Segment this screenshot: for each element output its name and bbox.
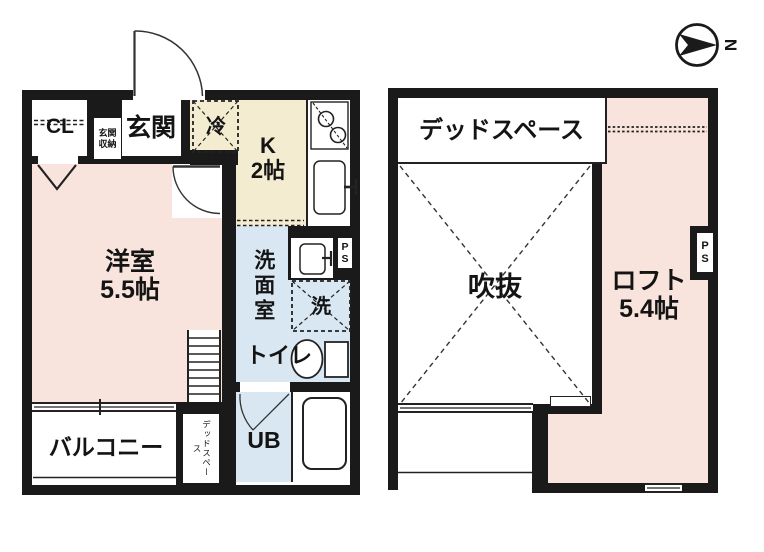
label-north: N xyxy=(720,34,740,56)
washbasin-box xyxy=(291,238,333,278)
label-genkan: 玄関 xyxy=(120,112,182,144)
loft-step-box xyxy=(550,396,591,407)
label-senmenshitsu: 洗面室 xyxy=(250,238,276,334)
loft-ladder xyxy=(187,330,221,402)
wall-cl-bottom-left xyxy=(32,156,38,164)
label-genkan-shuno: 玄関 収納 xyxy=(93,119,122,158)
label-loft: ロフト 5.4帖 xyxy=(592,264,706,326)
entrance-door-opening xyxy=(133,90,205,100)
entrance-door-icon xyxy=(135,31,203,96)
wall-room-senmen xyxy=(222,150,236,412)
wall-dead-right xyxy=(221,412,236,485)
label-ps-f2: P S xyxy=(697,236,713,269)
label-toilet: トイレ xyxy=(238,342,320,370)
wall-f2-right xyxy=(708,88,718,493)
label-rei: 冷 xyxy=(199,114,233,140)
wall-f1-bottom xyxy=(22,485,360,495)
window-fukinuke xyxy=(398,403,533,413)
label-cl: CL xyxy=(34,112,86,142)
label-sen: 洗 xyxy=(305,294,337,320)
label-yoshitsu: 洋室 5.5帖 xyxy=(55,244,205,308)
wall-f2-top xyxy=(388,88,718,98)
wall-f1-left xyxy=(22,90,32,495)
label-kitchen: K 2帖 xyxy=(238,128,298,190)
wall-f2-left xyxy=(388,88,398,490)
room-door-swing-area xyxy=(172,164,222,218)
wall-f1-right xyxy=(350,90,360,495)
wall-f2-bottom xyxy=(532,483,718,493)
label-fukinuke: 吹抜 xyxy=(435,270,555,304)
label-dead-space-f1: デッドスペース xyxy=(192,417,210,480)
bath-tub-area xyxy=(291,390,352,482)
label-balcony: バルコニー xyxy=(38,433,174,463)
label-ub: UB xyxy=(236,426,292,456)
room-loft-lower xyxy=(548,412,708,483)
wall-under-ladder xyxy=(176,402,236,412)
wall-genkan-kitchen xyxy=(181,100,190,164)
kitchen-counter xyxy=(306,100,350,228)
label-ps-f1: P S xyxy=(338,239,352,268)
window-loft-bottom xyxy=(645,483,682,493)
floorplan-canvas: CL 玄関 玄関 収納 冷 K 2帖 洋室 5.5帖 洗面室 洗 トイレ UB … xyxy=(0,0,764,552)
wall-shuno-top-chunk xyxy=(87,100,122,118)
label-dead-space-f2: デッドスペース xyxy=(398,116,605,146)
window-balcony xyxy=(32,402,176,412)
north-arrow-icon xyxy=(677,25,718,66)
wall-loft-lower-left xyxy=(532,404,548,490)
ub-door-opening xyxy=(240,382,290,392)
